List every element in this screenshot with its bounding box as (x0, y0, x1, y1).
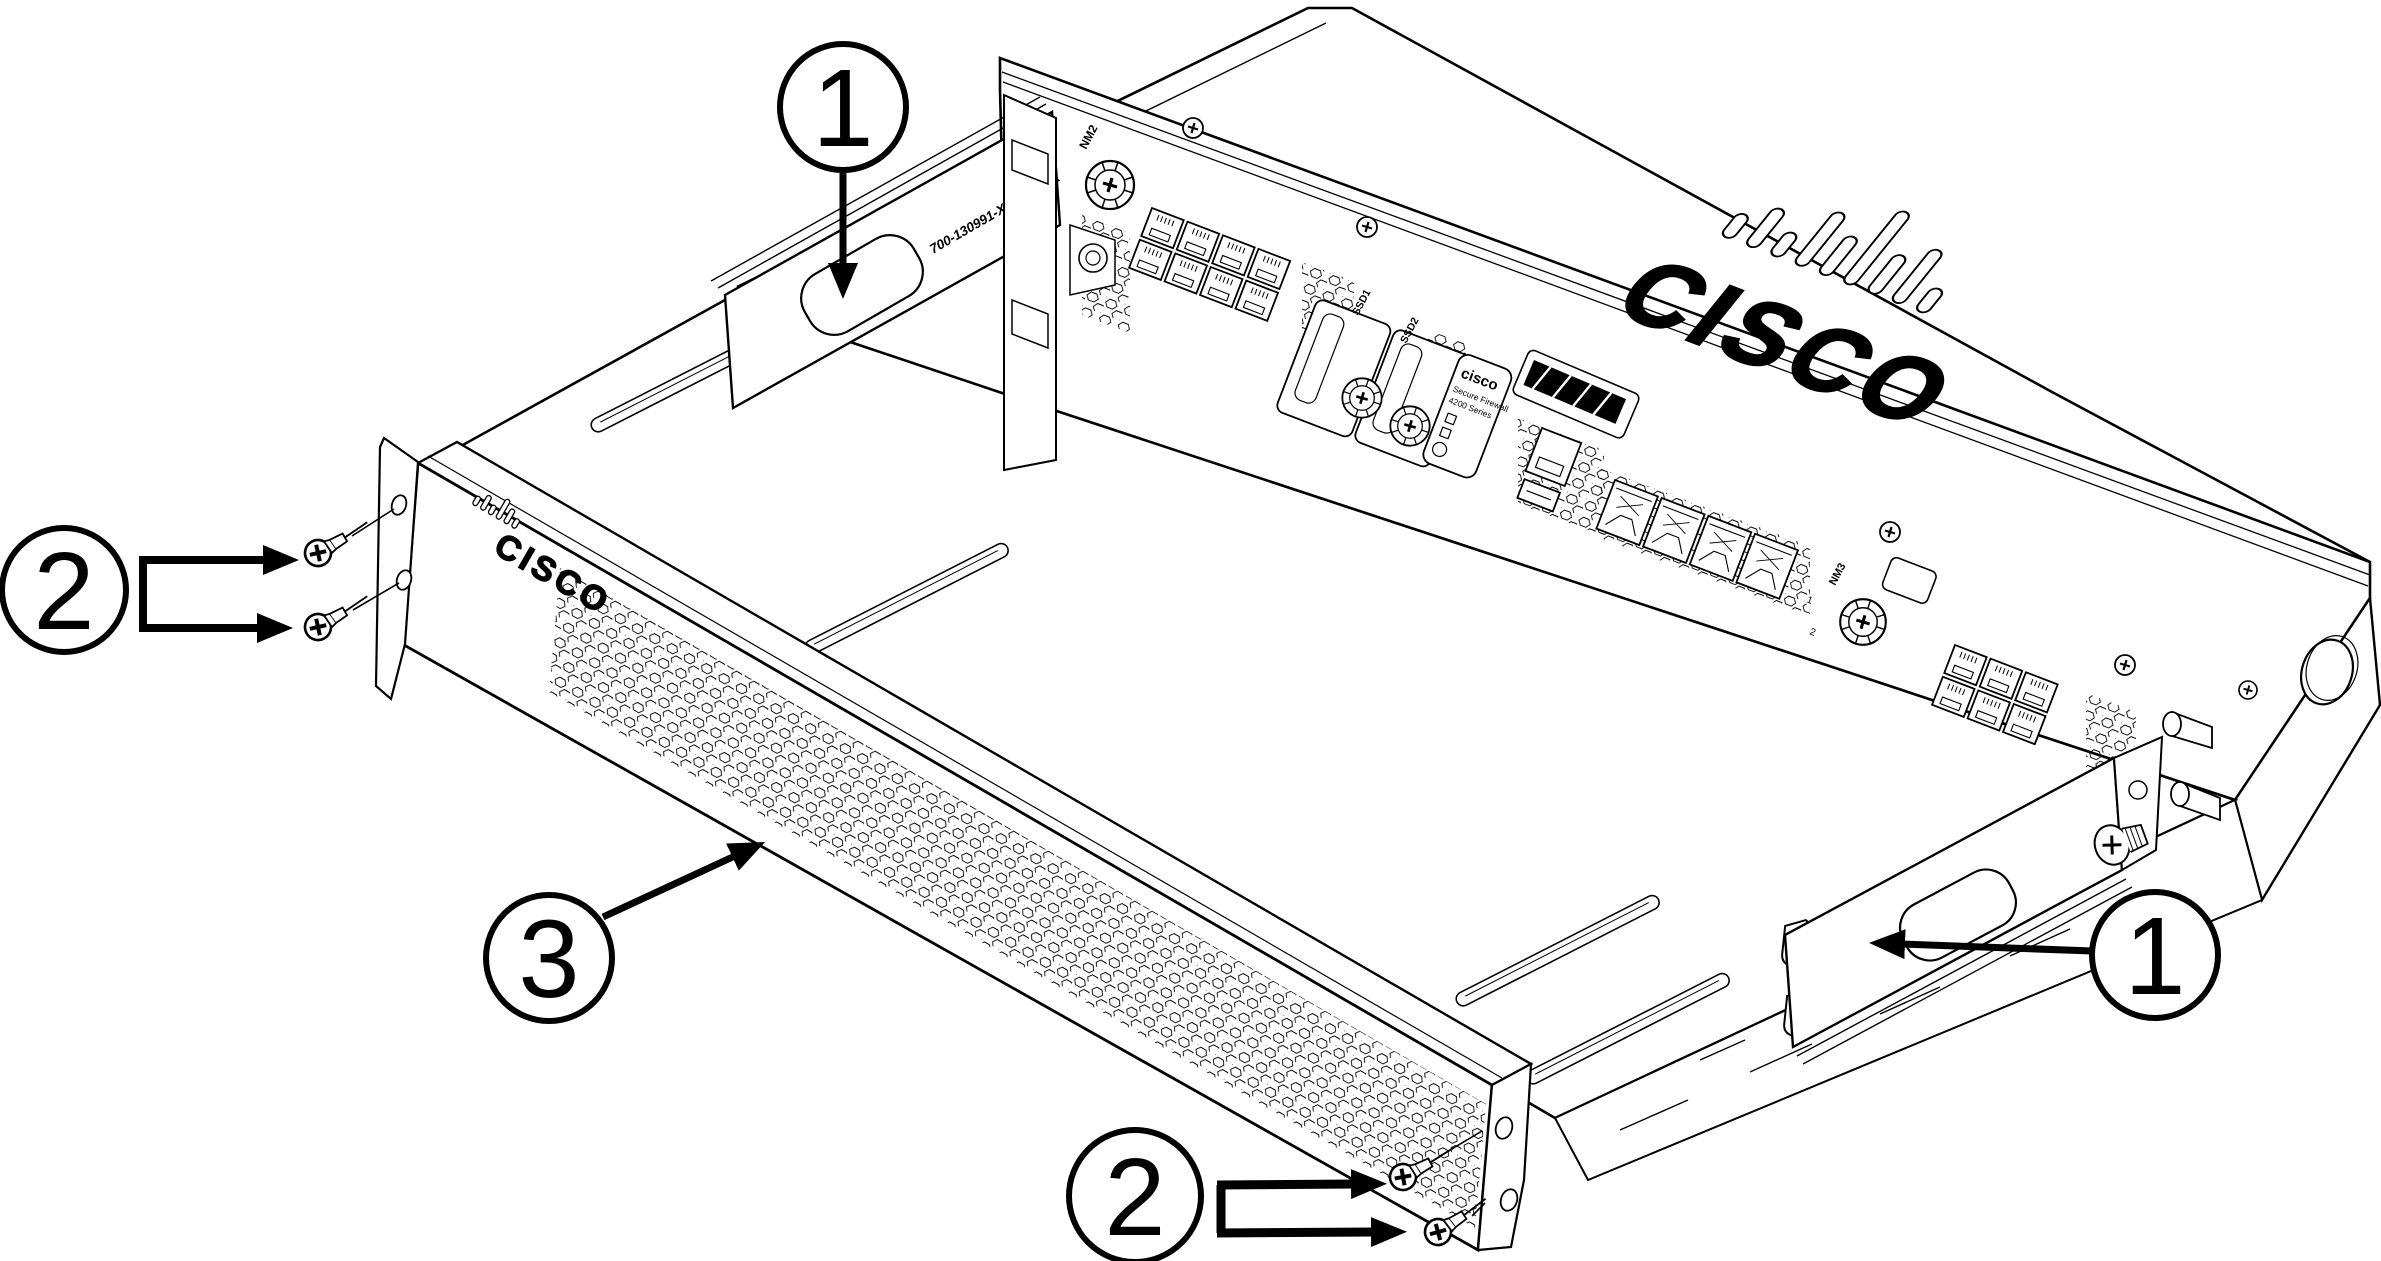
nm3-thumbscrew (1840, 599, 1886, 645)
panel-screw (2115, 655, 2135, 675)
ssd1-thumbscrew (1342, 378, 1381, 417)
screw (300, 587, 374, 645)
callout-3-number: 3 (518, 898, 579, 1021)
panel-screw (1183, 118, 1203, 138)
ssd2-thumbscrew (1390, 406, 1429, 445)
callout-3-bezel: 3 (486, 855, 737, 1021)
figure-canvas: NM2 SSD1 SSD2 cisco (0, 0, 2381, 1261)
callout-1-right-number: 1 (2124, 895, 2185, 1018)
installation-diagram: NM2 SSD1 SSD2 cisco (0, 0, 2381, 1261)
callout-1-top-number: 1 (812, 47, 873, 170)
panel-screw (1880, 522, 1900, 542)
screw (300, 513, 374, 571)
nm2-thumbscrew (1086, 161, 1134, 209)
panel-screw (1357, 217, 1377, 237)
callout-2-bottom-number: 2 (1104, 1136, 1165, 1259)
callout-2-left: 2 (2, 528, 268, 653)
callout-2-left-number: 2 (33, 530, 94, 653)
